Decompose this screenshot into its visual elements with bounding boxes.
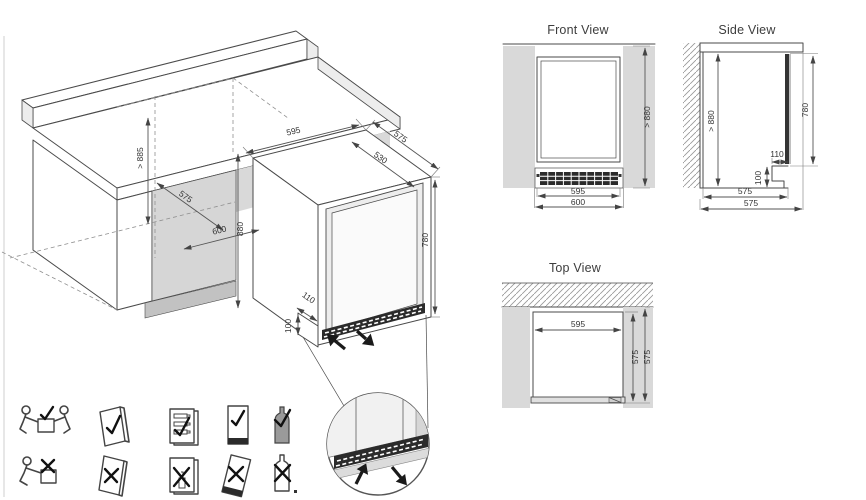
bottle-ok-icon	[275, 407, 290, 443]
side-plinth-step	[772, 166, 788, 188]
two-person-lift-icon	[20, 406, 70, 433]
footnote-square	[294, 490, 297, 493]
side-view-title: Side View	[718, 23, 776, 37]
diagram-canvas: > 885 575 600 880 595 575 530 780 110 10…	[0, 0, 866, 500]
front-door-outer	[537, 57, 620, 162]
bottles-lying-flat-icon	[170, 409, 198, 445]
side-dim-plinth-depth: 110	[770, 149, 784, 159]
side-dim-door-height: 780	[800, 103, 810, 117]
bottle-crossed-icon	[275, 455, 297, 493]
side-door-bar	[785, 54, 789, 164]
front-left-cabinet-panel	[503, 46, 535, 168]
side-dim-plinth-height: 100	[753, 171, 763, 185]
front-view-title: Front View	[547, 23, 609, 37]
keep-upright-icon	[228, 406, 248, 444]
top-dim-depth-outer: 575	[642, 350, 652, 364]
side-countertop	[700, 43, 803, 52]
side-view: Side View > 880 780 110 100 575 575	[683, 23, 818, 210]
top-wall-hatch	[502, 283, 653, 307]
dim-plinth-height: 100	[283, 319, 293, 333]
front-view: Front View > 880 595 600	[503, 23, 655, 208]
dim-door-height: 780	[420, 233, 430, 247]
top-view: Top View 595 575 575	[502, 261, 653, 408]
one-person-lift-icon	[20, 457, 56, 485]
installation-diagram-page: > 885 575 600 880 595 575 530 780 110 10…	[0, 0, 866, 500]
pictogram-legend	[20, 406, 297, 497]
appliance-isometric	[253, 130, 431, 347]
do-not-tilt-icon	[222, 455, 251, 497]
read-manual-icon	[100, 407, 129, 446]
top-dim-width: 595	[571, 319, 585, 329]
top-view-title: Top View	[549, 261, 602, 275]
side-wall-hatch	[683, 43, 700, 188]
cabinet-front-face	[117, 191, 152, 310]
side-dim-depth-inner: 575	[738, 186, 752, 196]
front-dim-height: > 880	[642, 106, 652, 128]
top-dim-depth-inner: 575	[630, 350, 640, 364]
side-dim-depth-outer: 575	[744, 198, 758, 208]
dim-niche-front-height: 880	[235, 222, 245, 236]
manual-crossed-icon	[99, 456, 127, 496]
side-dim-height: > 880	[706, 110, 716, 132]
niche-back-wall	[152, 170, 236, 301]
bottle-standing-icon	[170, 458, 198, 494]
front-dim-width-outer: 600	[571, 197, 585, 207]
front-dim-width-inner: 595	[571, 186, 585, 196]
top-left-cabinet-panel	[502, 307, 530, 408]
dim-niche-height: > 885	[135, 147, 145, 169]
